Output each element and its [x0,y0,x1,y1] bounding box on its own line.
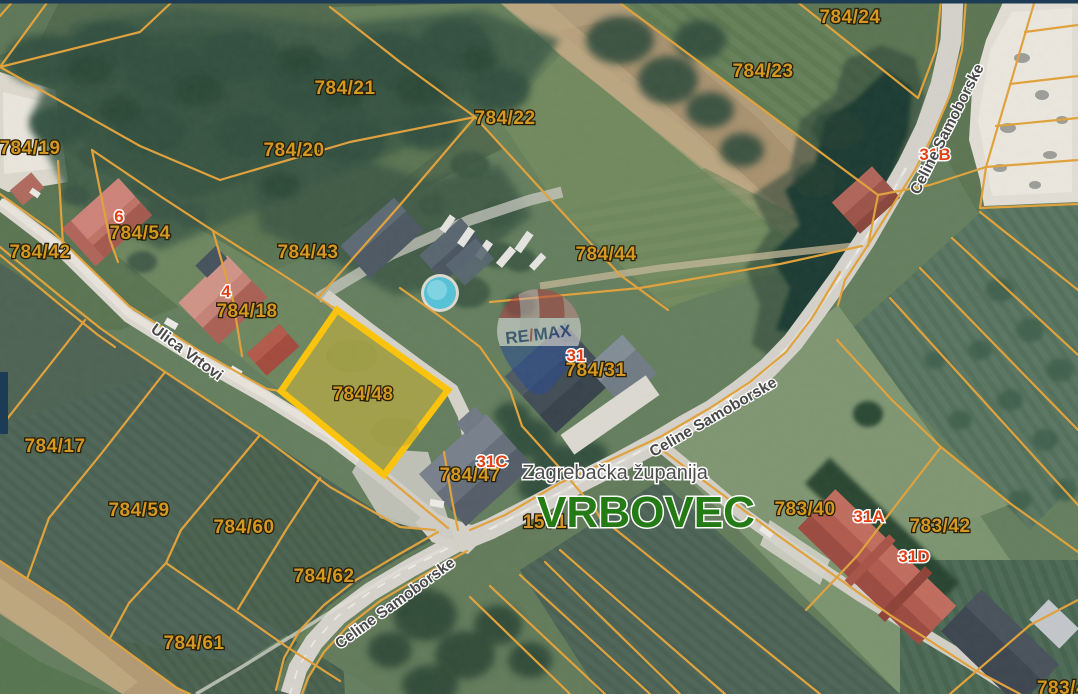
svg-text:784/24: 784/24 [819,7,880,28]
svg-text:Zagrebačka županija: Zagrebačka županija [522,462,709,484]
svg-text:784/60: 784/60 [213,517,274,538]
svg-text:31A: 31A [853,507,884,526]
svg-text:784/18: 784/18 [216,301,277,322]
svg-text:784/43: 784/43 [277,242,338,263]
svg-text:784/42: 784/42 [9,242,70,263]
svg-text:784/20: 784/20 [263,140,324,161]
svg-text:784/22: 784/22 [474,108,535,129]
svg-text:783/40: 783/40 [774,499,835,520]
svg-text:31C: 31C [476,452,507,471]
svg-text:784/23: 784/23 [732,61,793,82]
svg-text:783/42: 783/42 [909,516,970,537]
svg-text:784/59: 784/59 [108,500,169,521]
svg-text:31: 31 [567,346,586,365]
svg-text:4: 4 [221,282,231,301]
svg-text:784/19: 784/19 [0,138,61,159]
svg-text:784/62: 784/62 [293,566,354,587]
svg-text:783/4: 783/4 [1037,678,1078,694]
svg-text:784/21: 784/21 [314,78,375,99]
svg-text:784/54: 784/54 [109,223,170,244]
svg-text:784/44: 784/44 [575,244,636,265]
svg-text:31D: 31D [898,547,929,566]
svg-text:784/48: 784/48 [332,384,393,405]
svg-text:784/61: 784/61 [163,633,224,654]
svg-text:VRBOVEC: VRBOVEC [537,488,755,537]
svg-text:784/17: 784/17 [24,436,85,457]
svg-text:6: 6 [114,207,123,226]
